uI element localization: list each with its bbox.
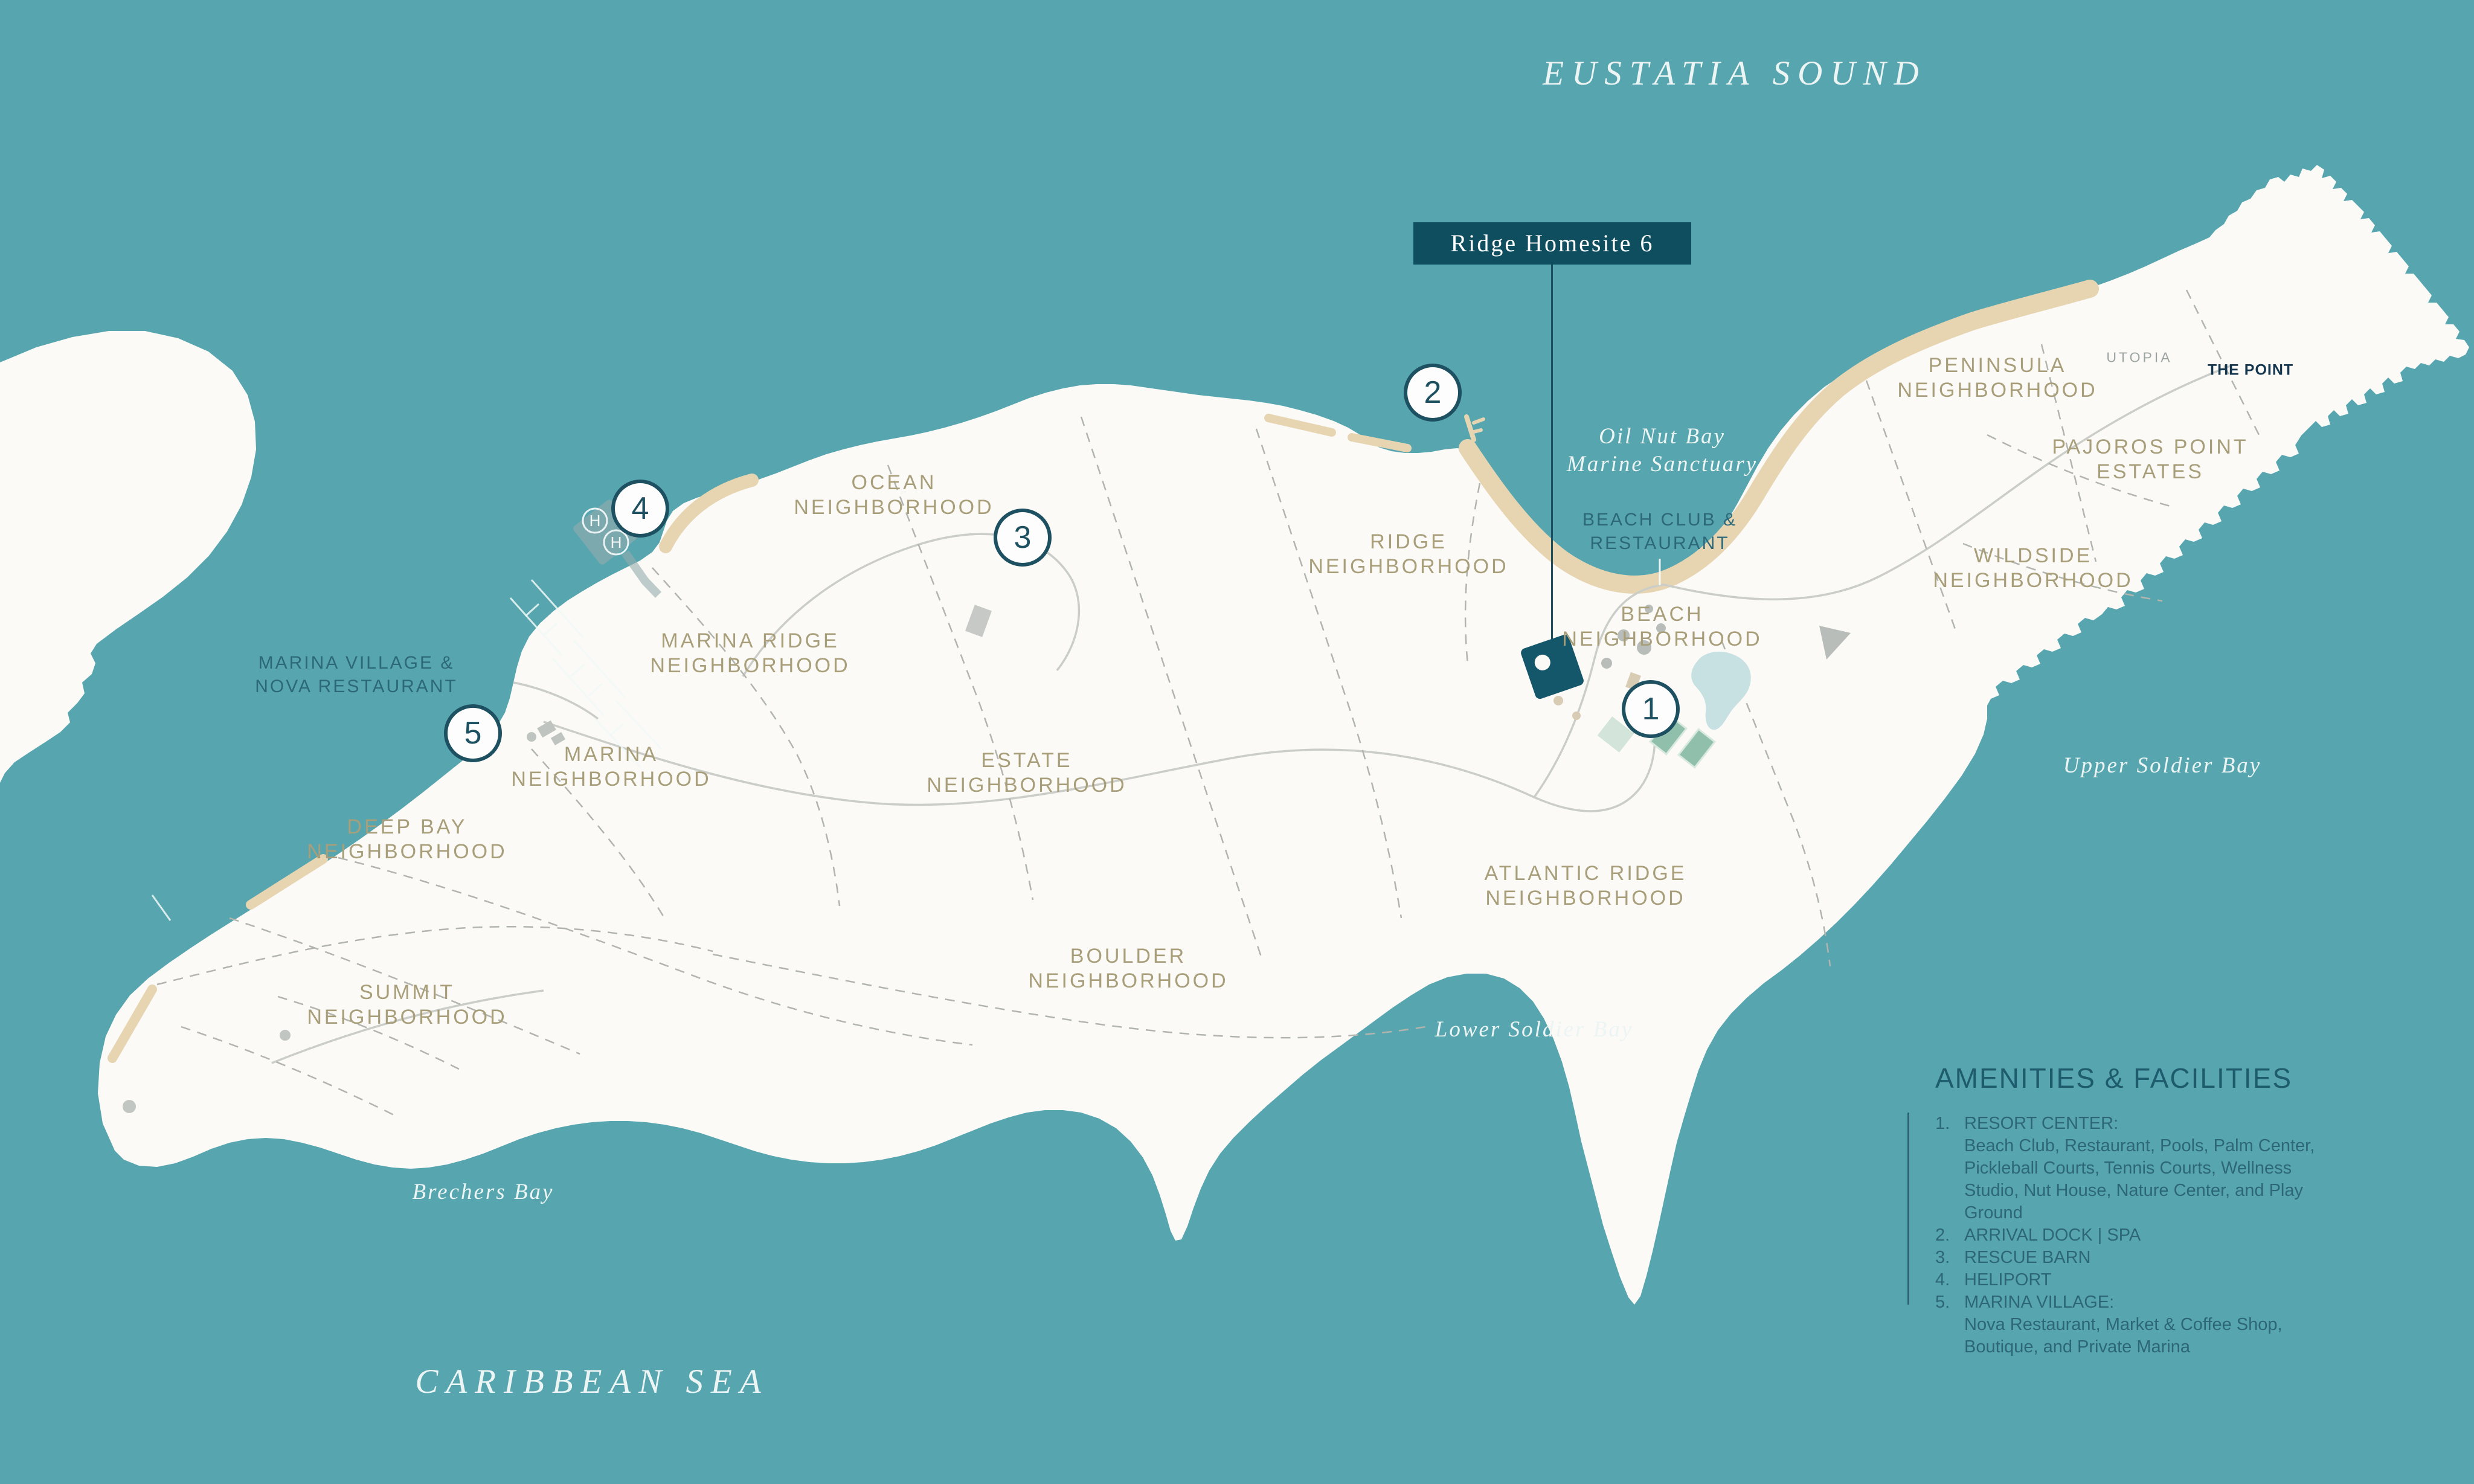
atlantic-ridge-line: ATLANTIC RIDGE	[1485, 861, 1687, 886]
legend-item-title: MARINA VILLAGE:	[1964, 1293, 2114, 1312]
brechers-bay-label: Brechers Bay	[413, 1178, 554, 1206]
ridge-line: NEIGHBORHOOD	[1308, 554, 1508, 579]
helipad-h-icon: H	[611, 533, 622, 551]
marina-village-nova-line: NOVA RESTAURANT	[255, 675, 458, 698]
legend-item-number: 1.	[1935, 1113, 1950, 1135]
legend-item-detail: Beach Club, Restaurant, Pools, Palm Cent…	[1964, 1135, 2327, 1224]
neighborhood-label-marina-ridge: MARINA RIDGENEIGHBORHOOD	[650, 629, 850, 678]
ridge-line: RIDGE	[1308, 530, 1508, 554]
beach-line: NEIGHBORHOOD	[1562, 627, 1762, 652]
homesite-marker-hole	[1532, 652, 1552, 672]
legend-item-5: 5.MARINA VILLAGE:Nova Restaurant, Market…	[1935, 1291, 2427, 1358]
legend-item-title: RESCUE BARN	[1964, 1248, 2091, 1267]
legend-item-4: 4.HELIPORT	[1935, 1269, 2427, 1291]
amenity-marker-1[interactable]: 1	[1622, 680, 1680, 738]
neighborhood-label-wildside: WILDSIDENEIGHBORHOOD	[1933, 544, 2133, 593]
amenities-legend: AMENITIES & FACILITIES 1.RESORT CENTER:B…	[1907, 1062, 2427, 1358]
beach-club-restaurant-line: RESTAURANT	[1582, 532, 1737, 555]
lower-soldier-bay-label: Lower Soldier Bay	[1435, 1016, 1633, 1044]
legend-item-title: RESORT CENTER:	[1964, 1114, 2118, 1133]
legend-item-number: 4.	[1935, 1269, 1950, 1291]
peninsula-line: NEIGHBORHOOD	[1897, 378, 2097, 403]
poi-label-beach-club-restaurant: BEACH CLUB &RESTAURANT	[1582, 508, 1737, 555]
neighborhood-label-summit: SUMMITNEIGHBORHOOD	[307, 980, 507, 1030]
estate-line: ESTATE	[927, 748, 1126, 773]
neighborhood-label-marina: MARINANEIGHBORHOOD	[511, 742, 711, 792]
legend-item-number: 2.	[1935, 1224, 1950, 1247]
marina-line: NEIGHBORHOOD	[511, 767, 711, 792]
west-landmass-shape	[0, 331, 256, 783]
legend-item-title: ARRIVAL DOCK | SPA	[1964, 1225, 2141, 1245]
atlantic-ridge-line: NEIGHBORHOOD	[1485, 886, 1687, 911]
amenity-marker-number: 3	[1014, 519, 1032, 556]
eustatia-sound-label: EUSTATIA SOUND	[1543, 54, 1926, 93]
ocean-line: OCEAN	[794, 471, 994, 495]
wildside-line: NEIGHBORHOOD	[1933, 568, 2133, 593]
neighborhood-label-deep-bay: DEEP BAYNEIGHBORHOOD	[307, 815, 507, 864]
neighborhood-label-pajoros-point: PAJOROS POINTESTATES	[2052, 435, 2248, 484]
summit-line: SUMMIT	[307, 980, 507, 1005]
deep-bay-line: DEEP BAY	[307, 815, 507, 840]
beach-club-restaurant-line: BEACH CLUB &	[1582, 508, 1737, 532]
summit-line: NEIGHBORHOOD	[307, 1005, 507, 1030]
ocean-line: NEIGHBORHOOD	[794, 495, 994, 520]
helipad-h-icon: H	[590, 512, 601, 530]
amenity-marker-3[interactable]: 3	[994, 509, 1052, 567]
marina-line: MARINA	[511, 742, 711, 767]
place-label-utopia: UTOPIA	[2106, 350, 2172, 366]
neighborhood-label-atlantic-ridge: ATLANTIC RIDGENEIGHBORHOOD	[1485, 861, 1687, 911]
pajoros-point-line: ESTATES	[2052, 460, 2248, 484]
caribbean-sea-label: CARIBBEAN SEA	[415, 1363, 768, 1401]
wildside-line: WILDSIDE	[1933, 544, 2133, 568]
homesite-tag[interactable]: Ridge Homesite 6	[1413, 222, 1691, 265]
oil-nut-bay-marine-sanctuary-label: Oil Nut BayMarine Sanctuary	[1567, 423, 1758, 478]
upper-soldier-bay-label: Upper Soldier Bay	[2063, 752, 2261, 780]
island-map: H H Ridge	[0, 0, 2474, 1484]
legend-rule	[1907, 1113, 1909, 1305]
amenity-marker-2[interactable]: 2	[1404, 364, 1462, 422]
legend-item-title: HELIPORT	[1964, 1270, 2052, 1290]
place-label-the-point: THE POINT	[2208, 362, 2293, 379]
neighborhood-label-boulder: BOULDERNEIGHBORHOOD	[1028, 944, 1228, 994]
marina-ridge-line: MARINA RIDGE	[650, 629, 850, 654]
amenity-marker-number: 1	[1642, 691, 1660, 727]
deep-bay-line: NEIGHBORHOOD	[307, 840, 507, 864]
neighborhood-label-ridge: RIDGENEIGHBORHOOD	[1308, 530, 1508, 579]
oil-nut-bay-marine-sanctuary-line: Marine Sanctuary	[1567, 451, 1758, 478]
legend-item-2: 2.ARRIVAL DOCK | SPA	[1935, 1224, 2427, 1247]
marina-ridge-line: NEIGHBORHOOD	[650, 654, 850, 678]
oil-nut-bay-marine-sanctuary-line: Oil Nut Bay	[1567, 423, 1758, 451]
legend-item-1: 1.RESORT CENTER:Beach Club, Restaurant, …	[1935, 1113, 2427, 1224]
neighborhood-label-estate: ESTATENEIGHBORHOOD	[927, 748, 1126, 798]
beach-club-restaurant-pointer-line	[1659, 559, 1660, 585]
legend-item-number: 5.	[1935, 1291, 1950, 1314]
amenity-marker-number: 5	[464, 715, 482, 751]
legend-item-detail: Nova Restaurant, Market & Coffee Shop, B…	[1964, 1314, 2327, 1358]
marina-village-nova-line: MARINA VILLAGE &	[255, 651, 458, 675]
pajoros-point-line: PAJOROS POINT	[2052, 435, 2248, 460]
legend-title: AMENITIES & FACILITIES	[1935, 1062, 2427, 1094]
neighborhood-label-ocean: OCEANNEIGHBORHOOD	[794, 471, 994, 520]
amenity-marker-number: 4	[632, 490, 649, 527]
amenity-marker-5[interactable]: 5	[444, 704, 502, 762]
boulder-line: NEIGHBORHOOD	[1028, 969, 1228, 994]
peninsula-line: PENINSULA	[1897, 353, 2097, 378]
legend-list: 1.RESORT CENTER:Beach Club, Restaurant, …	[1907, 1113, 2427, 1358]
amenity-marker-number: 2	[1424, 374, 1442, 411]
poi-label-marina-village-nova: MARINA VILLAGE &NOVA RESTAURANT	[255, 651, 458, 698]
legend-item-number: 3.	[1935, 1247, 1950, 1269]
boulder-line: BOULDER	[1028, 944, 1228, 969]
legend-item-3: 3.RESCUE BARN	[1935, 1247, 2427, 1269]
neighborhood-label-peninsula: PENINSULANEIGHBORHOOD	[1897, 353, 2097, 403]
amenity-marker-4[interactable]: 4	[611, 480, 669, 538]
estate-line: NEIGHBORHOOD	[927, 773, 1126, 798]
beach-line: BEACH	[1562, 602, 1762, 627]
neighborhood-label-beach: BEACHNEIGHBORHOOD	[1562, 602, 1762, 652]
homesite-leader-line	[1551, 265, 1553, 651]
